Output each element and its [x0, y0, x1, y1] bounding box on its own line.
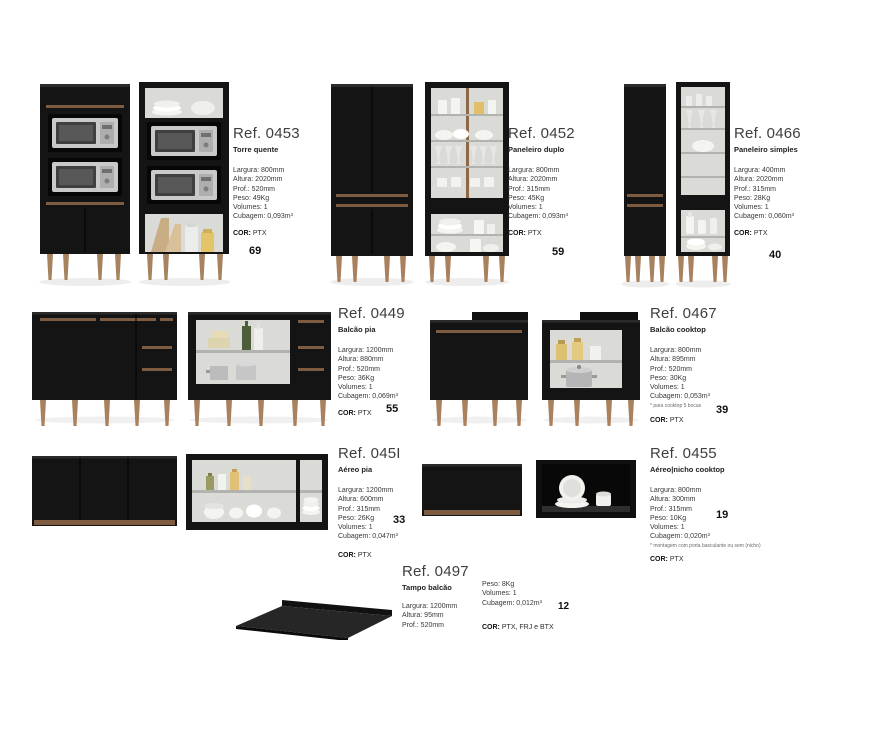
- spec-line: Prof.: 520mm: [650, 365, 770, 374]
- color-value: PTX: [528, 230, 542, 237]
- item-number: 40: [769, 249, 781, 261]
- product-illustration-0452: [328, 78, 512, 290]
- color-label: COR:: [508, 230, 526, 237]
- product-ref: Ref. 0467: [650, 306, 770, 322]
- product-illustration-0449: [30, 306, 333, 426]
- spec-line: Volumes: 1: [734, 203, 839, 212]
- spec-line: Largura: 1200mm: [338, 346, 438, 355]
- color-label: COR:: [338, 552, 356, 559]
- product-illustration-0466: [622, 78, 732, 292]
- color-line: COR:PTX, FRJ e BTX: [482, 624, 582, 631]
- spec-line: Peso: 10Kg: [650, 514, 810, 523]
- cabinet-open: [542, 312, 640, 426]
- cabinet-open: [425, 82, 509, 286]
- color-value: PTX: [253, 230, 267, 237]
- spec-line: Volumes: 1: [338, 383, 438, 392]
- color-label: COR:: [233, 230, 251, 237]
- spec-line: Cubagem: 0,060m³: [734, 212, 839, 221]
- cabinet-closed: [32, 456, 177, 526]
- spec-line: Peso: 30Kg: [650, 374, 770, 383]
- color-label: COR:: [734, 230, 752, 237]
- color-value: PTX: [670, 556, 684, 563]
- product-illustration-0467: [428, 306, 640, 426]
- color-label: COR:: [650, 417, 668, 424]
- spec-line: Prof.: 520mm: [233, 185, 333, 194]
- spec-line: Prof.: 315mm: [508, 185, 608, 194]
- product-card: Ref. 0453 Torre quente Largura: 800mm Al…: [233, 126, 333, 237]
- spec-line: Cubagem: 0,020m³: [650, 532, 810, 541]
- product-specs: Largura: 800mm Altura: 2020mm Prof.: 315…: [508, 166, 608, 222]
- product-illustration-0455: [420, 458, 638, 532]
- spec-line: Largura: 800mm: [650, 346, 770, 355]
- product-ref: Ref. 0449: [338, 306, 438, 322]
- spec-line: Altura: 300mm: [650, 495, 810, 504]
- color-line: COR:PTX: [508, 230, 608, 237]
- cabinet-open: [536, 460, 636, 518]
- item-number: 12: [558, 601, 569, 612]
- cabinet-closed: [422, 464, 522, 516]
- spec-line: Peso: 45Kg: [508, 194, 608, 203]
- cabinet-open: [188, 312, 331, 426]
- spec-line: Altura: 880mm: [338, 355, 438, 364]
- product-card: Ref. 0455 Aéreo|nicho cooktop Largura: 8…: [650, 446, 810, 563]
- spec-line: Altura: 895mm: [650, 355, 770, 364]
- product-ref: Ref. 0466: [734, 126, 839, 142]
- color-line: COR:PTX: [734, 230, 839, 237]
- product-footnote: * montagem com porta basculante ou sem (…: [650, 543, 810, 549]
- cabinet-closed: [430, 312, 528, 426]
- spec-line: Largura: 800mm: [233, 166, 333, 175]
- product-card: Ref. 0452 Paneleiro duplo Largura: 800mm…: [508, 126, 608, 237]
- color-label: COR:: [338, 410, 356, 417]
- cabinet-closed: [32, 312, 177, 426]
- product-illustration-0451: [30, 452, 330, 548]
- product-card: Ref. 0497 Tampo balcão Largura: 1200mm A…: [402, 564, 582, 630]
- color-value: PTX: [754, 230, 768, 237]
- cabinet-closed: [330, 84, 414, 286]
- product-specs: Largura: 800mm Altura: 2020mm Prof.: 520…: [233, 166, 333, 222]
- catalog-page: Ref. 0453 Torre quente Largura: 800mm Al…: [0, 0, 882, 748]
- spec-line: Largura: 400mm: [734, 166, 839, 175]
- product-specs: Largura: 800mm Altura: 300mm Prof.: 315m…: [650, 486, 810, 542]
- item-number: 55: [386, 403, 398, 415]
- color-value: PTX: [670, 417, 684, 424]
- spec-line: Altura: 2020mm: [233, 175, 333, 184]
- color-label: COR:: [650, 556, 668, 563]
- color-value: PTX: [358, 410, 372, 417]
- spec-line: Prof.: 315mm: [650, 505, 810, 514]
- product-specs: Largura: 1200mm Altura: 880mm Prof.: 520…: [338, 346, 438, 402]
- item-number: 33: [393, 514, 405, 526]
- product-ref: Ref. 0455: [650, 446, 810, 462]
- spec-line: Prof.: 520mm: [338, 365, 438, 374]
- spec-line: Cubagem: 0,069m³: [338, 392, 438, 401]
- cabinet-closed: [39, 84, 131, 286]
- spec-line: Cubagem: 0,093m³: [508, 212, 608, 221]
- item-number: 39: [716, 404, 728, 416]
- product-title: Paneleiro simples: [734, 145, 839, 154]
- color-line: COR:PTX: [338, 552, 438, 559]
- spec-line: Peso: 49Kg: [233, 194, 333, 203]
- product-title: Aéreo|nicho cooktop: [650, 465, 810, 474]
- color-value: PTX, FRJ e BTX: [502, 624, 554, 631]
- spec-line: Cubagem: 0,093m³: [233, 212, 333, 221]
- product-title: Torre quente: [233, 145, 333, 154]
- product-title: Balcão cooktop: [650, 325, 770, 334]
- product-card: Ref. 0467 Balcão cooktop Largura: 800mm …: [650, 306, 770, 424]
- countertop-panel: [236, 600, 392, 640]
- spec-line: Altura: 2020mm: [508, 175, 608, 184]
- spec-line: Cubagem: 0,047m³: [338, 532, 438, 541]
- product-title: Balcão pia: [338, 325, 438, 334]
- item-number: 69: [249, 245, 261, 257]
- cabinet-closed: [622, 84, 669, 288]
- item-number: 59: [552, 246, 564, 258]
- product-ref: Ref. 0497: [402, 564, 582, 580]
- product-ref: Ref. 0453: [233, 126, 333, 142]
- cabinet-open: [139, 82, 230, 286]
- spec-line: Volumes: 1: [508, 203, 608, 212]
- item-number: 19: [716, 509, 728, 521]
- spec-line: Altura: 2020mm: [734, 175, 839, 184]
- cabinet-open: [675, 82, 731, 288]
- spec-line: Largura: 800mm: [508, 166, 608, 175]
- spec-line: Volumes: 1: [233, 203, 333, 212]
- product-specs: Largura: 400mm Altura: 2020mm Prof.: 315…: [734, 166, 839, 222]
- spec-line: Peso: 8Kg: [482, 580, 582, 589]
- product-specs: Largura: 800mm Altura: 895mm Prof.: 520m…: [650, 346, 770, 402]
- color-value: PTX: [358, 552, 372, 559]
- spec-line: Volumes: 1: [650, 523, 810, 532]
- spec-line: Peso: 28Kg: [734, 194, 839, 203]
- color-line: COR:PTX: [233, 230, 333, 237]
- spec-line: Prof.: 315mm: [734, 185, 839, 194]
- spec-line: Cubagem: 0,053m³: [650, 392, 770, 401]
- spec-line: Volumes: 1: [482, 589, 582, 598]
- color-line: COR:PTX: [650, 556, 810, 563]
- product-title: Paneleiro duplo: [508, 145, 608, 154]
- spec-line: Peso: 36Kg: [338, 374, 438, 383]
- product-card: Ref. 0449 Balcão pia Largura: 1200mm Alt…: [338, 306, 438, 417]
- color-line: COR:PTX: [650, 417, 770, 424]
- product-illustration-0497: [228, 592, 400, 640]
- product-card: Ref. 0466 Paneleiro simples Largura: 400…: [734, 126, 839, 237]
- product-illustration-0453: [35, 78, 230, 290]
- cabinet-open: [186, 454, 328, 530]
- spec-line: Volumes: 1: [650, 383, 770, 392]
- product-footnote: * para cooktop 5 bocas: [650, 403, 770, 409]
- spec-line: Largura: 800mm: [650, 486, 810, 495]
- product-ref: Ref. 0452: [508, 126, 608, 142]
- color-label: COR:: [482, 624, 500, 631]
